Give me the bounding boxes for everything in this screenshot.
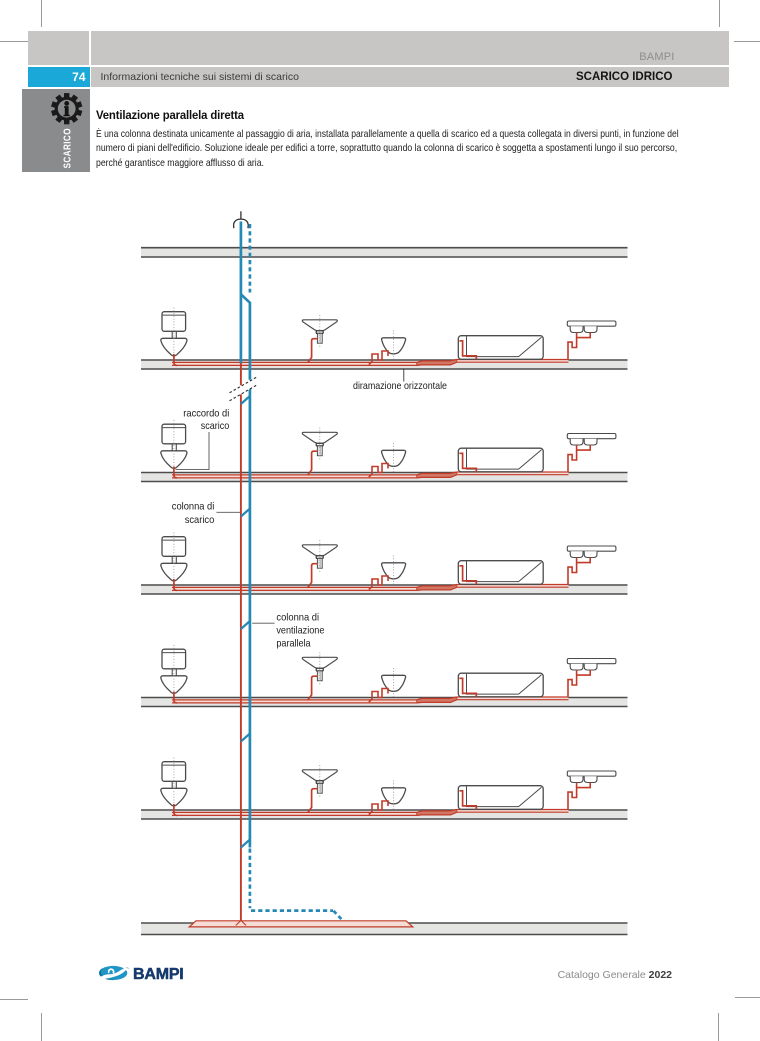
svg-text:scarico: scarico (185, 515, 215, 526)
svg-text:colonna di: colonna di (276, 613, 319, 624)
svg-text:diramazione orizzontale: diramazione orizzontale (353, 381, 447, 392)
svg-text:scarico: scarico (201, 421, 230, 432)
svg-text:parallela: parallela (276, 639, 310, 650)
svg-text:ventilazione: ventilazione (276, 626, 324, 637)
svg-text:raccordo di: raccordo di (183, 408, 229, 419)
svg-text:colonna di: colonna di (172, 502, 215, 513)
